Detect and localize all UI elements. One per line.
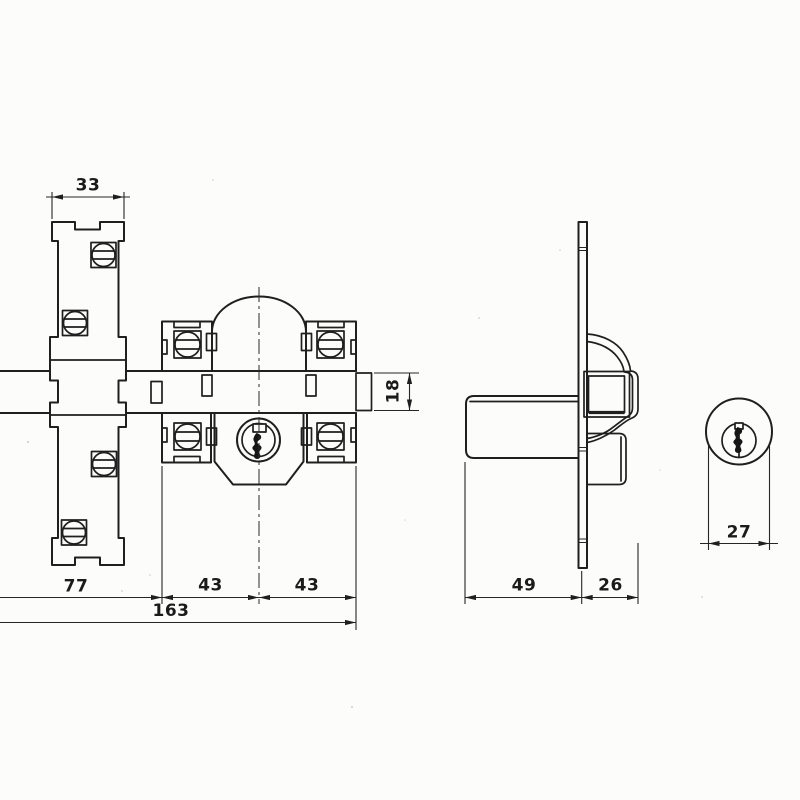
lock-body-front-view xyxy=(151,287,356,604)
bar-guide-tab xyxy=(306,375,316,396)
dim-label-18: 18 xyxy=(384,379,404,404)
lock-side-view xyxy=(466,222,638,568)
dim-label-33: 33 xyxy=(76,176,101,196)
mount-bracket xyxy=(302,413,357,463)
dim-label-49: 49 xyxy=(512,576,537,596)
bolt-end xyxy=(356,373,372,411)
keyhole-icon xyxy=(733,427,742,453)
dim-label-43-right: 43 xyxy=(295,576,320,596)
bar-guide-tab xyxy=(202,375,212,396)
scan-speckles xyxy=(27,179,703,708)
strike-plate-front-view xyxy=(50,222,126,565)
dim-label-26: 26 xyxy=(598,576,623,596)
technical-drawing-lock: 33 18 77 43 43 163 49 26 27 xyxy=(0,0,800,800)
mount-bracket xyxy=(162,322,217,372)
dimension-side-view: 49 26 xyxy=(465,462,638,604)
dimension-cylinder-diameter: 27 xyxy=(700,444,778,550)
mount-bracket xyxy=(302,322,357,372)
dim-label-77: 77 xyxy=(64,577,89,597)
bar-guide-tab xyxy=(151,382,162,404)
dimension-bolt-height: 18 xyxy=(374,373,419,411)
backplate-side xyxy=(579,222,588,568)
mount-bracket xyxy=(162,413,217,463)
cylinder-side xyxy=(466,396,578,458)
bolt-housing-side xyxy=(584,372,630,418)
strike-plate-outline xyxy=(50,222,126,565)
dim-label-27: 27 xyxy=(727,523,752,543)
dim-label-43-left: 43 xyxy=(198,576,223,596)
dim-label-163: 163 xyxy=(153,601,190,621)
cylinder-front-view xyxy=(706,399,772,465)
dimension-strike-plate-width: 33 xyxy=(46,176,130,220)
